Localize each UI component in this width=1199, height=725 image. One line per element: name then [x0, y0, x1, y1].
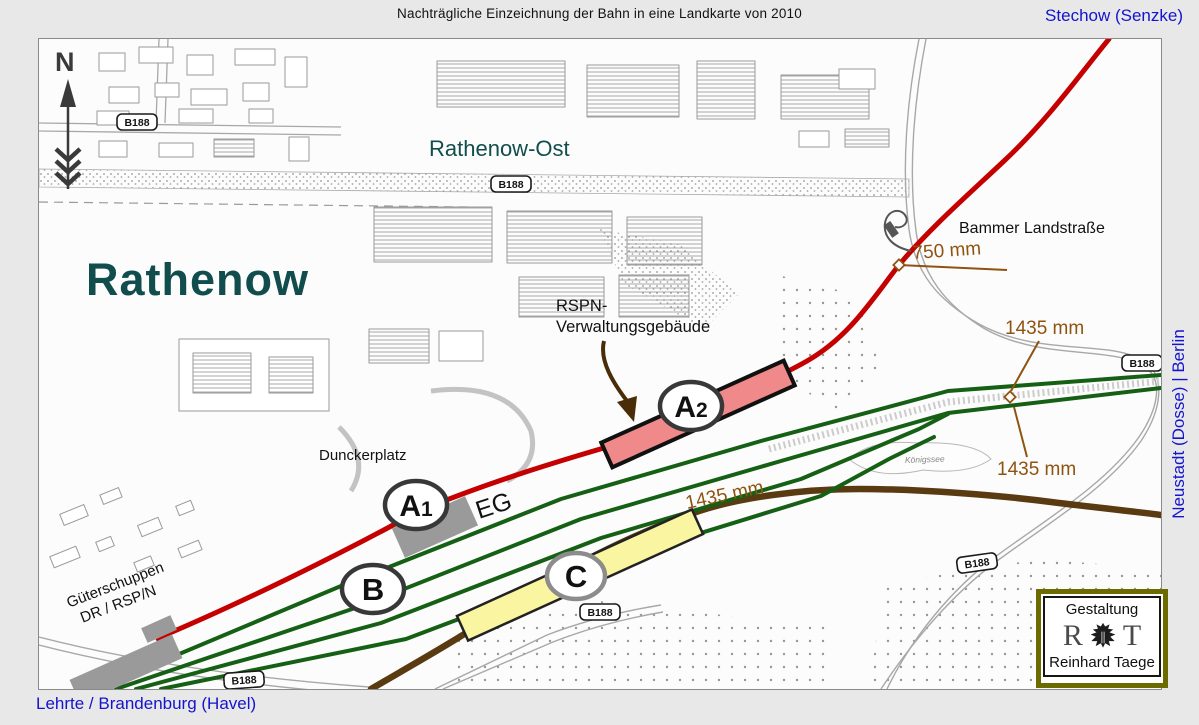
credit-title: Gestaltung: [1066, 601, 1139, 618]
svg-text:B188: B188: [231, 674, 257, 688]
road-badge-b188: B188: [223, 671, 264, 689]
corridor-label-stechow: Stechow (Senzke): [1045, 6, 1183, 26]
gauge-label-1435mm-lower: 1435 mm: [997, 459, 1076, 480]
svg-text:C: C: [565, 559, 587, 594]
gauge-label-1435mm-upper: 1435 mm: [1005, 318, 1084, 339]
credit-initial-r: R: [1063, 621, 1083, 651]
location-markers: A1 A2 B C: [342, 382, 722, 613]
page-title: Nachträgliche Einzeichnung der Bahn in e…: [0, 6, 1199, 21]
credit-name: Reinhard Taege: [1049, 654, 1155, 671]
north-arrow: N: [55, 47, 80, 189]
credit-box: Gestaltung R T Reinhard Taege: [1036, 589, 1168, 688]
street-label-bammer: Bammer Landstraße: [959, 220, 1105, 237]
city-label: Rathenow: [86, 254, 309, 305]
admin-building-label-line2: Verwaltungsgebäude: [556, 318, 710, 336]
loop-track: [884, 211, 911, 251]
lake-label: Königssee: [905, 454, 945, 465]
annotation-arrow: [603, 341, 627, 401]
corridor-label-neustadt-berlin: Neustadt (Dosse) | Berlin: [1169, 329, 1189, 519]
svg-text:B188: B188: [498, 179, 523, 191]
credit-initial-t: T: [1123, 621, 1141, 651]
district-label: Rathenow-Ost: [429, 136, 570, 161]
corridor-label-lehrte-brandenburg: Lehrte / Brandenburg (Havel): [36, 694, 256, 714]
marker-c: C: [547, 553, 605, 599]
north-label: N: [55, 47, 75, 77]
road-badge-b188: B188: [117, 114, 157, 130]
svg-text:B188: B188: [1129, 358, 1154, 370]
page: Nachträgliche Einzeichnung der Bahn in e…: [0, 0, 1199, 725]
gauge-label-750mm: 750 mm: [912, 238, 982, 264]
road-badge-b188: B188: [491, 176, 531, 192]
svg-text:B188: B188: [587, 607, 612, 619]
marker-a1: A1: [385, 481, 447, 529]
map-svg: 750 mm 1435 mm 1435 mm 1435 mm RSPN- Ver…: [39, 39, 1161, 689]
gauge-label-1435mm-connecting: 1435 mm: [684, 477, 766, 514]
svg-text:B188: B188: [124, 117, 149, 129]
map-canvas: 750 mm 1435 mm 1435 mm 1435 mm RSPN- Ver…: [38, 38, 1162, 690]
svg-text:B: B: [362, 572, 384, 607]
road-badge-b188: B188: [580, 604, 620, 620]
marker-a2: A2: [660, 382, 722, 430]
credit-box-inner: Gestaltung R T Reinhard Taege: [1043, 596, 1161, 677]
square-label-dunckerplatz: Dunckerplatz: [319, 447, 407, 464]
marker-b: B: [342, 565, 404, 613]
gauge-annotations: [893, 259, 1039, 457]
eagle-crest-icon: [1088, 620, 1118, 652]
admin-building-label-line1: RSPN-: [556, 297, 607, 315]
credit-initials: R T: [1063, 620, 1141, 652]
annotation-arrowhead: [617, 396, 637, 422]
road-badge-b188: B188: [1122, 355, 1161, 371]
goods-shed-label: Güterschuppen DR / RSP/N: [64, 559, 173, 629]
